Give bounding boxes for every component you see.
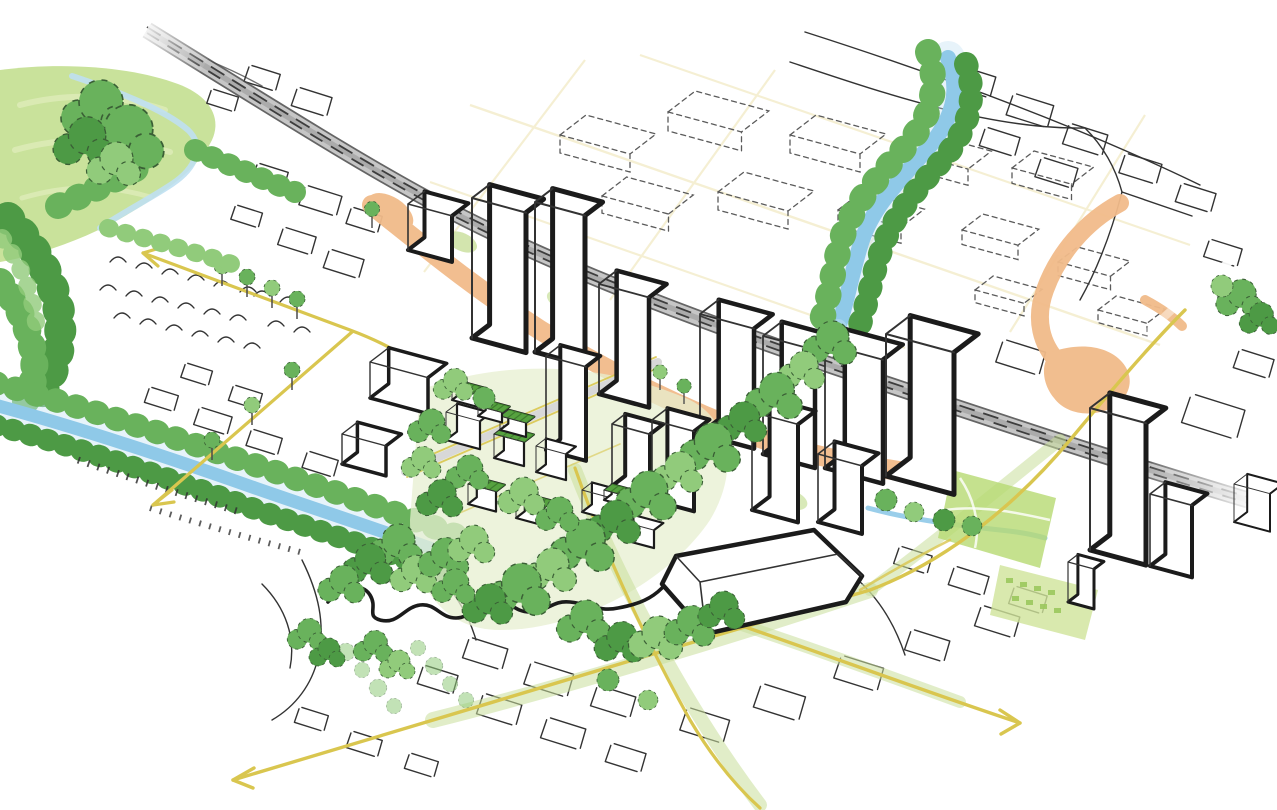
- railway-fade: [147, 29, 205, 64]
- street-tree-band: [108, 228, 238, 266]
- building: [342, 422, 401, 476]
- building: [1068, 554, 1104, 609]
- north-east-orange-road: [1040, 203, 1120, 362]
- arrow-head-lower-left: [153, 490, 174, 505]
- axis-north-west: [143, 253, 424, 372]
- arrow-head-lower-right: [1000, 710, 1020, 734]
- building: [1150, 482, 1207, 577]
- masterplan-canvas: [0, 0, 1277, 810]
- street-tree-band: [195, 150, 295, 192]
- hillside-park: [0, 66, 215, 412]
- masterplan-illustration: [0, 0, 1277, 810]
